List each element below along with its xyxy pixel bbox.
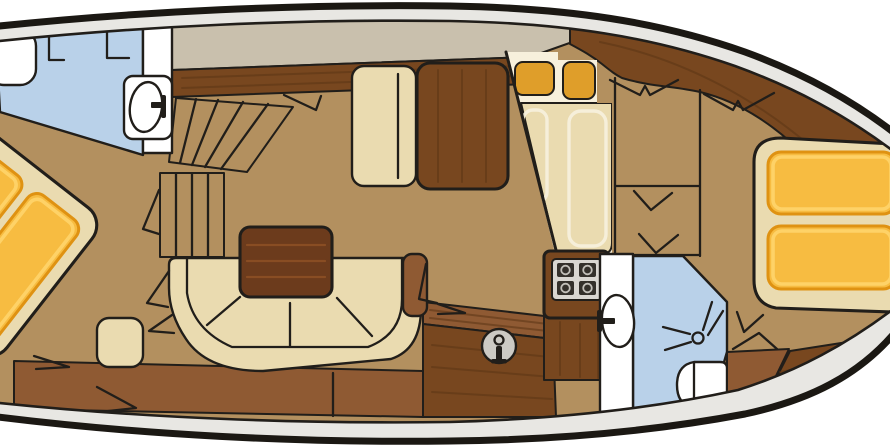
sideboard [14, 361, 423, 417]
counter-section-right [563, 62, 595, 99]
aft-berth [754, 138, 890, 312]
floor-plan-svg [0, 0, 890, 446]
stool [97, 318, 143, 367]
boat-floor-plan [0, 0, 890, 446]
bench-seat [352, 66, 416, 186]
bench-backrest [417, 63, 508, 189]
aft-mattress-top [768, 152, 890, 214]
counter-section-left [515, 62, 554, 95]
dining-table [240, 227, 332, 297]
sofa-armrest [403, 254, 427, 316]
galley-round-sink [482, 329, 516, 364]
aft-mattress-bottom [768, 226, 890, 289]
